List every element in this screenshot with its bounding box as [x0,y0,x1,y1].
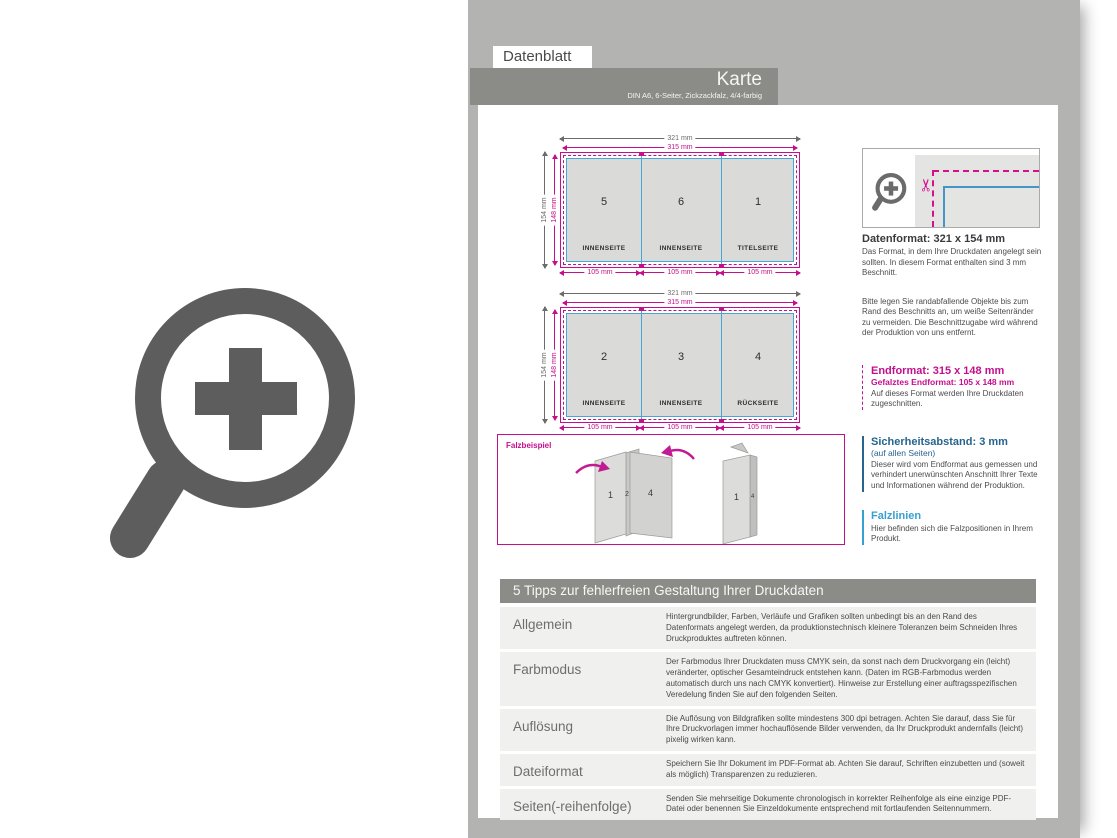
sicherheitsabstand-heading: Sicherheitsabstand: 3 mm [871,436,1042,448]
panel: 6 INNENSEITE [643,158,719,262]
fold-mark [719,419,724,423]
tip-text: Die Auflösung von Bildgrafiken sollte mi… [662,709,1036,751]
panel: 5 INNENSEITE [566,158,642,262]
sicherheitsabstand-section: Sicherheitsabstand: 3 mm (auf allen Seit… [862,436,1042,492]
safety-line-detail [943,186,1039,188]
fold-example-figures: 1 2 4 1 4 [498,435,844,544]
fold-mark [719,264,724,268]
tips-header: 5 Tipps zur fehlerfreien Gestaltung Ihre… [500,579,1036,603]
tip-label: Farbmodus [500,652,662,705]
dim-outer-height-2: 154 mm [544,307,545,423]
layout-sheet-1: 5 INNENSEITE 6 INNENSEITE 1 TITELSEITE [560,152,800,268]
dim-panel-width: 105 mm [640,272,720,273]
layout-sheet-2: 2 INNENSEITE 3 INNENSEITE 4 RÜCKSEITE [560,307,800,423]
table-row: Seiten(-reihenfolge) Senden Sie mehrseit… [500,789,1036,821]
datenformat-section: Datenformat: 321 x 154 mm Das Format, in… [862,233,1042,339]
tip-label: Dateiformat [500,754,662,786]
endformat-heading: Endformat: 315 x 148 mm [871,365,1042,377]
panel: 1 TITELSEITE [720,158,796,262]
format-descriptions: Datenformat: 321 x 154 mm Das Format, in… [862,233,1042,555]
falzlinien-heading: Falzlinien [871,510,1042,522]
dim-inner-width-2: 315 mm [563,302,797,303]
magnifier-handle [130,480,166,538]
fold-mark [639,307,644,311]
tip-text: Hintergrundbilder, Farben, Verläufe und … [662,607,1036,649]
plus-v [229,348,262,450]
zoom-plus-icon[interactable] [100,288,362,560]
datasheet-page: 321 mm 315 mm 154 mm 148 mm 5 INNENSEITE… [478,105,1058,818]
zoom-plus-small-icon [871,173,907,211]
endformat-section: Endformat: 315 x 148 mm Gefalztes Endfor… [862,365,1042,410]
datasheet-screen: Datenblatt Karte DIN A6, 6-Seiter, Zickz… [0,0,1117,838]
dim-panel-width: 105 mm [560,272,640,273]
dim-outer-height-1: 154 mm [544,152,545,268]
page-title: Karte [470,70,762,90]
corner-detail: ✂ [915,155,1039,227]
tips-table: 5 Tipps zur fehlerfreien Gestaltung Ihre… [500,579,1036,823]
title-band: Karte DIN A6, 6-Seiter, Zickzackfalz, 4/… [470,68,778,105]
dim-panel-width: 105 mm [720,272,800,273]
fold-mark [639,152,644,156]
table-row: Auflösung Die Auflösung von Bildgrafiken… [500,709,1036,751]
panel: 4 RÜCKSEITE [720,313,796,417]
dim-panel-width: 105 mm [720,427,800,428]
dim-inner-height-1: 148 mm [554,155,555,265]
dim-panel-width: 105 mm [560,427,640,428]
page-subtitle: DIN A6, 6-Seiter, Zickzackfalz, 4/4-farb… [470,90,762,101]
fold-mark [639,419,644,423]
tip-text: Der Farbmodus Ihrer Druckdaten muss CMYK… [662,652,1036,705]
panel: 2 INNENSEITE [566,313,642,417]
fold-mark [639,264,644,268]
fold-example-box: Falzbeispiel 1 2 4 1 4 [497,434,845,545]
tip-text: Speichern Sie Ihr Dokument im PDF-Format… [662,754,1036,786]
falzlinien-section: Falzlinien Hier befinden sich die Falzpo… [862,510,1042,545]
table-row: Allgemein Hintergrundbilder, Farben, Ver… [500,607,1036,649]
tip-text: Senden Sie mehrseitige Dokumente chronol… [662,789,1036,821]
table-row: Farbmodus Der Farbmodus Ihrer Druckdaten… [500,652,1036,705]
svg-text:1: 1 [734,492,739,502]
dim-inner-width-1: 315 mm [563,147,797,148]
fold-mark [719,307,724,311]
table-row: Dateiformat Speichern Sie Ihr Dokument i… [500,754,1036,786]
svg-text:1: 1 [608,490,613,500]
detail-zoom-box: ✂ [862,148,1040,228]
dim-outer-width-2: 321 mm [560,293,800,294]
scissors-icon: ✂ [917,178,937,192]
datenformat-heading: Datenformat: 321 x 154 mm [862,233,1042,245]
tip-label: Auflösung [500,709,662,751]
fold-example-label: Falzbeispiel [506,441,551,450]
bleed-line-detail [933,170,1039,172]
fold-mark [719,152,724,156]
dim-panel-width: 105 mm [640,427,720,428]
datenblatt-tab: Datenblatt [493,46,592,68]
svg-text:2: 2 [625,491,629,498]
tip-label: Seiten(-reihenfolge) [500,789,662,821]
tip-label: Allgemein [500,607,662,649]
dim-outer-width-1: 321 mm [560,138,800,139]
svg-text:4: 4 [648,488,653,498]
safety-line-detail [943,186,945,227]
dim-inner-height-2: 148 mm [554,310,555,420]
panel: 3 INNENSEITE [643,313,719,417]
